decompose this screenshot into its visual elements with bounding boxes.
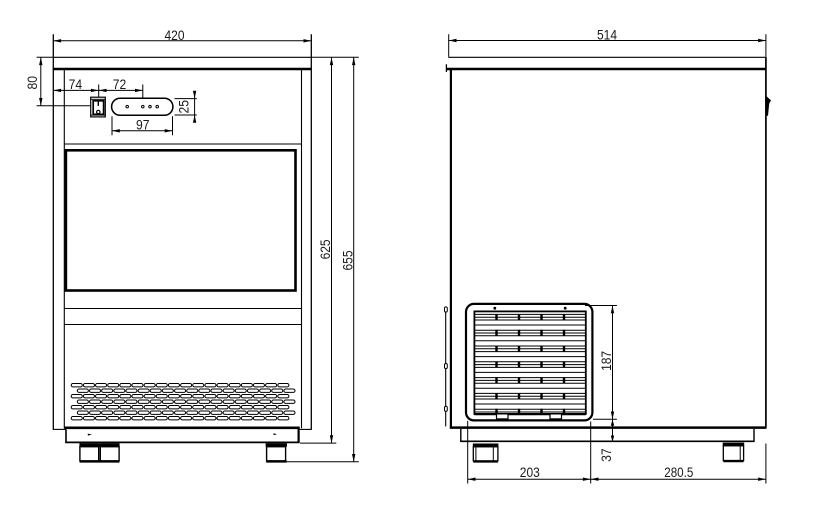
svg-text:187: 187 <box>599 351 615 371</box>
svg-text:514: 514 <box>597 28 617 44</box>
svg-text:72: 72 <box>113 77 127 93</box>
svg-text:37: 37 <box>599 448 615 462</box>
svg-text:280.5: 280.5 <box>664 465 693 481</box>
svg-text:97: 97 <box>136 117 150 133</box>
svg-text:74: 74 <box>69 77 83 93</box>
svg-text:80: 80 <box>25 76 41 90</box>
svg-text:25: 25 <box>176 100 192 114</box>
svg-text:655: 655 <box>340 250 356 270</box>
svg-text:203: 203 <box>520 465 540 481</box>
svg-text:625: 625 <box>318 239 334 259</box>
svg-text:420: 420 <box>165 28 185 44</box>
